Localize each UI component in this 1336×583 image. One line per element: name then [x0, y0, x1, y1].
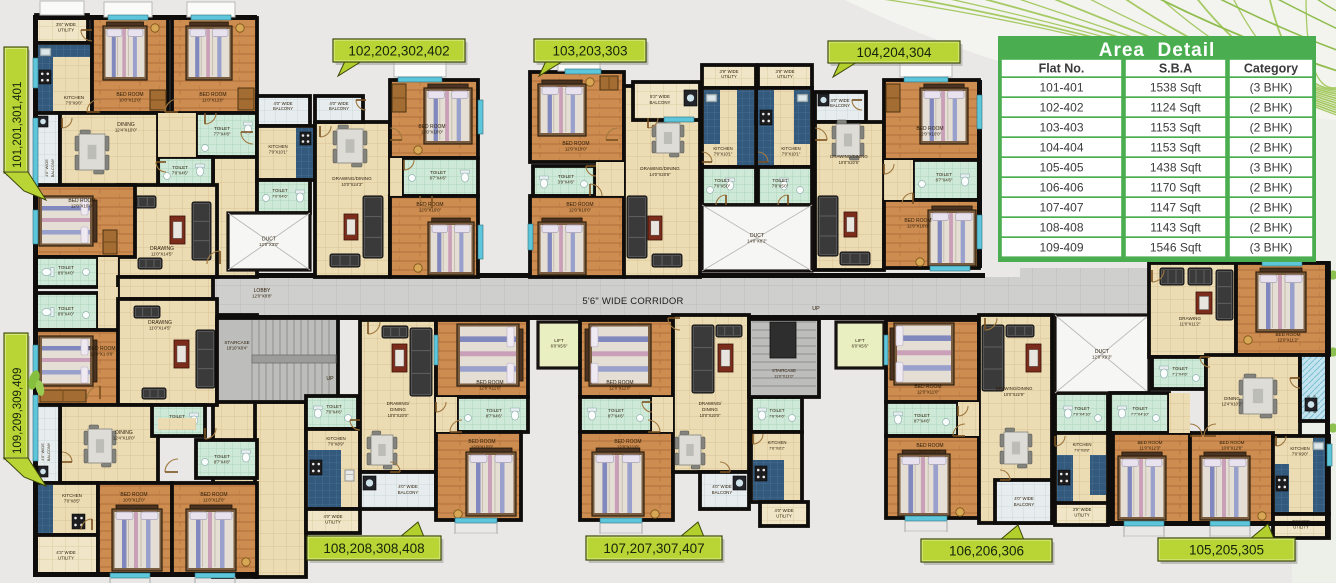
svg-text:BED ROOM: BED ROOM [1275, 332, 1300, 337]
svg-text:7'0"X9'0": 7'0"X9'0" [66, 101, 83, 106]
svg-text:12'0"X11'0": 12'0"X11'0" [917, 390, 939, 395]
svg-text:7'1"X4'6": 7'1"X4'6" [1172, 372, 1189, 377]
svg-text:108,208,308,408: 108,208,308,408 [323, 541, 424, 556]
svg-text:LIFT: LIFT [855, 338, 865, 343]
svg-text:7'0"X8'8": 7'0"X8'8" [1074, 448, 1091, 453]
svg-text:10'0"X12'0": 10'0"X12'0" [123, 498, 146, 503]
svg-text:11'0"X14'5": 11'0"X14'5" [151, 252, 173, 257]
svg-text:1438 Sqft: 1438 Sqft [1150, 161, 1202, 175]
svg-text:UTILITY: UTILITY [58, 556, 74, 561]
svg-text:102,202,302,402: 102,202,302,402 [348, 43, 449, 58]
svg-text:1124 Sqft: 1124 Sqft [1150, 101, 1201, 115]
svg-text:12'0"X10'0": 12'0"X10'0" [421, 130, 444, 135]
svg-text:12'0"X8'8": 12'0"X8'8" [252, 294, 272, 299]
svg-text:103-403: 103-403 [1039, 121, 1083, 135]
svg-text:BALCONY: BALCONY [46, 442, 51, 461]
svg-text:10'0"X12'0": 10'0"X12'0" [1221, 446, 1243, 451]
svg-text:TOILET: TOILET [714, 178, 730, 183]
svg-text:BALCONY: BALCONY [712, 490, 733, 495]
svg-text:KITCHEN: KITCHEN [326, 436, 345, 441]
svg-text:109,209,309,409: 109,209,309,409 [12, 368, 24, 454]
svg-text:12'0"X10'0": 12'0"X10'0" [919, 132, 942, 137]
svg-text:8'7"X4'6": 8'7"X4'6" [936, 178, 953, 183]
svg-text:1153 Sqft: 1153 Sqft [1150, 141, 1201, 155]
svg-text:KITCHEN: KITCHEN [713, 146, 732, 151]
svg-text:4'0" WIDE: 4'0" WIDE [712, 484, 732, 489]
svg-text:105-405: 105-405 [1039, 161, 1083, 175]
svg-text:7'0"X9'0": 7'0"X9'0" [1292, 452, 1309, 457]
svg-text:DRAWING/DINING: DRAWING/DINING [332, 176, 372, 181]
svg-text:UTILITY: UTILITY [721, 74, 737, 79]
svg-text:(3 BHK): (3 BHK) [1250, 161, 1293, 175]
svg-text:3'6" WIDE: 3'6" WIDE [56, 22, 76, 27]
svg-text:TOILET: TOILET [770, 408, 785, 413]
svg-text:7'0"X10'1": 7'0"X10'1" [714, 152, 733, 157]
svg-text:BALCONY: BALCONY [329, 106, 349, 111]
svg-text:KITCHEN: KITCHEN [268, 144, 287, 149]
svg-text:UTILITY: UTILITY [58, 28, 74, 33]
svg-text:12'0"X9'3": 12'0"X9'3" [1092, 355, 1112, 360]
svg-text:KITCHEN: KITCHEN [781, 146, 800, 151]
svg-text:106,206,306: 106,206,306 [949, 543, 1024, 558]
svg-text:UTILITY: UTILITY [776, 514, 792, 519]
svg-text:S.B.A: S.B.A [1159, 61, 1192, 75]
svg-text:12'0"X10'0": 12'0"X10'0" [907, 224, 930, 229]
svg-text:BALCONY: BALCONY [273, 106, 293, 111]
svg-text:DINING: DINING [390, 407, 406, 412]
svg-text:14'0"X8'2": 14'0"X8'2" [747, 239, 767, 244]
svg-text:11'0"X11'0": 11'0"X11'0" [774, 374, 794, 379]
svg-text:7'0"X10'1": 7'0"X10'1" [269, 150, 288, 155]
svg-text:DRAWING/DINING: DRAWING/DINING [640, 166, 680, 171]
svg-text:DRAWING/: DRAWING/ [699, 401, 723, 406]
svg-text:8'0"X4'0": 8'0"X4'0" [58, 271, 75, 276]
svg-text:7'0"X4'6": 7'0"X4'6" [326, 410, 343, 415]
svg-text:TOILET: TOILET [58, 306, 74, 311]
svg-text:107,207,307,407: 107,207,307,407 [603, 541, 704, 556]
svg-text:BED ROOM: BED ROOM [1137, 440, 1162, 445]
svg-text:12'0"X11'2": 12'0"X11'2" [1277, 338, 1299, 343]
svg-text:12'0"X11'0": 12'0"X11'0" [617, 445, 639, 450]
svg-text:12'0"X10'0": 12'0"X10'0" [71, 204, 94, 209]
svg-text:8'7"X4'6": 8'7"X4'6" [608, 414, 625, 419]
svg-text:12'0"X10'0": 12'0"X10'0" [471, 445, 494, 450]
svg-text:(2 BHK): (2 BHK) [1250, 181, 1293, 195]
svg-text:10'0"X22'9": 10'0"X22'9" [1004, 392, 1025, 397]
svg-text:TOILET: TOILET [486, 408, 502, 413]
svg-text:104,204,304: 104,204,304 [856, 45, 932, 60]
svg-text:7'6"X8'2": 7'6"X8'2" [769, 446, 786, 451]
svg-text:11'0"X14'5": 11'0"X14'5" [149, 326, 171, 331]
svg-text:11'0"X11'2": 11'0"X11'2" [1180, 322, 1201, 327]
svg-text:TOILET: TOILET [272, 188, 288, 193]
svg-text:11'0"X12'3": 11'0"X12'3" [1139, 446, 1161, 451]
svg-text:(3 BHK): (3 BHK) [1250, 81, 1293, 95]
svg-text:Category: Category [1244, 61, 1298, 75]
svg-text:3'9" WIDE: 3'9" WIDE [1073, 507, 1092, 512]
svg-text:8'7"X4'6": 8'7"X4'6" [914, 419, 931, 424]
svg-text:10'0"X20'6": 10'0"X20'6" [839, 160, 860, 165]
svg-text:LIFT: LIFT [554, 338, 564, 343]
svg-text:8'7"X4'6": 8'7"X4'6" [430, 176, 447, 181]
svg-text:UTILITY: UTILITY [325, 520, 341, 525]
svg-text:KITCHEN: KITCHEN [1290, 446, 1309, 451]
svg-text:7'6"X4'6": 7'6"X4'6" [769, 414, 786, 419]
svg-text:101,201,301,401: 101,201,301,401 [12, 82, 24, 168]
svg-text:DRAWING: DRAWING [1179, 316, 1201, 321]
svg-text:5'3" WIDE: 5'3" WIDE [650, 94, 670, 99]
svg-text:TOILET: TOILET [936, 172, 952, 177]
svg-text:14'0"X20'6": 14'0"X20'6" [649, 172, 671, 177]
svg-text:8'7"X4'8": 8'7"X4'8" [214, 460, 231, 465]
svg-text:7'0"X10'1": 7'0"X10'1" [782, 152, 801, 157]
svg-text:104-404: 104-404 [1039, 141, 1083, 155]
svg-text:DINING: DINING [1224, 396, 1240, 401]
svg-text:106-406: 106-406 [1039, 181, 1083, 195]
svg-text:KITCHEN: KITCHEN [62, 493, 82, 498]
svg-text:1153 Sqft: 1153 Sqft [1150, 121, 1201, 135]
svg-text:4'0" WIDE: 4'0" WIDE [44, 159, 49, 177]
svg-text:8'7"X4'6": 8'7"X4'6" [486, 414, 503, 419]
svg-text:12'0"X10'0": 12'0"X10'0" [565, 147, 588, 152]
svg-text:18'10"X8'4": 18'10"X8'4" [227, 346, 248, 351]
svg-text:7'0"X4'6": 7'0"X4'6" [272, 194, 289, 199]
svg-text:3'9"X4'6": 3'9"X4'6" [558, 180, 575, 185]
svg-text:107-407: 107-407 [1039, 201, 1083, 215]
svg-text:5'6" WIDE CORRIDOR: 5'6" WIDE CORRIDOR [582, 296, 683, 307]
svg-text:1546 Sqft: 1546 Sqft [1150, 241, 1202, 255]
svg-text:10'0"X20'0": 10'0"X20'0" [700, 413, 721, 418]
svg-text:11'0"X12'0": 11'0"X12'0" [203, 498, 225, 503]
svg-text:105,205,305: 105,205,305 [1189, 542, 1264, 557]
svg-text:TOILET: TOILET [772, 178, 788, 183]
svg-text:7'0"X4'6": 7'0"X4'6" [172, 171, 189, 176]
svg-text:(2 BHK): (2 BHK) [1250, 201, 1293, 215]
svg-text:TOILET: TOILET [1133, 406, 1148, 411]
svg-text:12'0"X10'0": 12'0"X10'0" [919, 449, 942, 454]
svg-text:101-401: 101-401 [1039, 81, 1083, 95]
svg-text:4'0" WIDE: 4'0" WIDE [40, 443, 45, 461]
svg-text:108-408: 108-408 [1039, 221, 1083, 235]
svg-text:8'0"X4'0": 8'0"X4'0" [58, 312, 75, 317]
svg-text:BALCONY: BALCONY [50, 158, 55, 177]
svg-text:TOILET: TOILET [914, 413, 930, 418]
svg-text:10'0"X24'3": 10'0"X24'3" [341, 182, 363, 187]
svg-text:TOILET: TOILET [214, 126, 230, 131]
svg-text:102-402: 102-402 [1039, 101, 1083, 115]
svg-text:TOILET: TOILET [326, 404, 342, 409]
svg-text:DRAWING/: DRAWING/ [387, 401, 411, 406]
svg-text:UP: UP [812, 306, 820, 312]
svg-text:6'0"X5'6": 6'0"X5'6" [551, 344, 568, 349]
svg-text:1143 Sqft: 1143 Sqft [1150, 221, 1201, 235]
svg-text:(3 BHK): (3 BHK) [1250, 241, 1293, 255]
svg-text:(2 BHK): (2 BHK) [1250, 121, 1293, 135]
svg-text:12'4"X10'2": 12'4"X10'2" [1222, 402, 1243, 407]
svg-text:7'0"X8'5": 7'0"X8'5" [64, 499, 81, 504]
svg-text:11'0"X12'0": 11'0"X12'0" [202, 98, 224, 103]
svg-text:(2 BHK): (2 BHK) [1250, 101, 1293, 115]
svg-text:103,203,303: 103,203,303 [552, 43, 627, 58]
svg-text:TOILET: TOILET [1172, 366, 1188, 371]
svg-text:TOILET: TOILET [1075, 406, 1090, 411]
svg-text:109-409: 109-409 [1039, 241, 1083, 255]
svg-text:KITCHEN: KITCHEN [1073, 442, 1092, 447]
svg-text:12'0"X1 0'0": 12'0"X1 0'0" [90, 352, 114, 357]
svg-text:7'0"X4'10": 7'0"X4'10" [1073, 412, 1092, 417]
svg-text:BALCONY: BALCONY [830, 103, 850, 108]
svg-text:KITCHEN: KITCHEN [64, 95, 84, 100]
svg-text:6'0"X5'6": 6'0"X5'6" [852, 344, 869, 349]
svg-text:1170 Sqft: 1170 Sqft [1150, 181, 1201, 195]
svg-text:KITCHEN: KITCHEN [768, 440, 787, 445]
svg-text:TOILET: TOILET [430, 170, 446, 175]
svg-text:TOILET: TOILET [58, 265, 74, 270]
svg-text:DRAWING/DINING: DRAWING/DINING [996, 386, 1033, 391]
svg-text:BALCONY: BALCONY [1014, 502, 1035, 507]
svg-text:4'0" WIDE: 4'0" WIDE [398, 484, 418, 489]
svg-text:12'4"X10'0": 12'4"X10'0" [115, 128, 138, 133]
svg-text:BALCONY: BALCONY [650, 100, 671, 105]
svg-text:4'0" WIDE: 4'0" WIDE [774, 508, 793, 513]
svg-text:(2 BHK): (2 BHK) [1250, 221, 1293, 235]
svg-text:TOILET: TOILET [558, 174, 574, 179]
svg-text:TOILET: TOILET [172, 165, 188, 170]
svg-text:4'0" WIDE: 4'0" WIDE [1014, 496, 1034, 501]
svg-text:7'0"X5'0": 7'0"X5'0" [714, 184, 731, 189]
svg-text:10'0"X12'0": 10'0"X12'0" [119, 98, 142, 103]
svg-text:12'0"X11'0": 12'0"X11'0" [479, 386, 501, 391]
svg-text:7'0"X8'9": 7'0"X8'9" [328, 442, 345, 447]
svg-text:Area Detail: Area Detail [1099, 40, 1216, 61]
svg-text:UP: UP [326, 376, 334, 382]
svg-text:4'3" WIDE: 4'3" WIDE [56, 550, 76, 555]
svg-text:UTILITY: UTILITY [1074, 513, 1090, 518]
svg-text:10'0"X20'0": 10'0"X20'0" [388, 413, 409, 418]
svg-text:Flat No.: Flat No. [1039, 61, 1085, 75]
svg-text:STAIRCASE: STAIRCASE [224, 340, 249, 345]
svg-text:12'0"X3'0": 12'0"X3'0" [259, 242, 279, 247]
svg-text:BALCONY: BALCONY [398, 490, 419, 495]
svg-text:1538 Sqft: 1538 Sqft [1150, 81, 1202, 95]
svg-text:12'0"X10'0": 12'0"X10'0" [569, 208, 592, 213]
svg-text:BED ROOM: BED ROOM [1219, 440, 1244, 445]
svg-text:12'4"X10'0": 12'4"X10'0" [113, 436, 136, 441]
svg-text:DRAWING/DINING: DRAWING/DINING [830, 154, 868, 159]
svg-text:7'7"X4'10": 7'7"X4'10" [1131, 412, 1150, 417]
svg-text:DINING: DINING [702, 407, 718, 412]
svg-text:1147 Sqft: 1147 Sqft [1150, 201, 1201, 215]
svg-text:UTILITY: UTILITY [777, 74, 793, 79]
svg-text:7'0"X5'0": 7'0"X5'0" [772, 184, 789, 189]
svg-text:12'0"X11'0": 12'0"X11'0" [609, 386, 631, 391]
svg-text:7'7"X4'8": 7'7"X4'8" [214, 132, 231, 137]
svg-text:4'0" WIDE: 4'0" WIDE [323, 514, 342, 519]
svg-text:(2 BHK): (2 BHK) [1250, 141, 1293, 155]
svg-text:TOILET: TOILET [608, 408, 624, 413]
svg-text:TOILET: TOILET [214, 454, 230, 459]
svg-text:STAIRCASE: STAIRCASE [772, 368, 796, 373]
